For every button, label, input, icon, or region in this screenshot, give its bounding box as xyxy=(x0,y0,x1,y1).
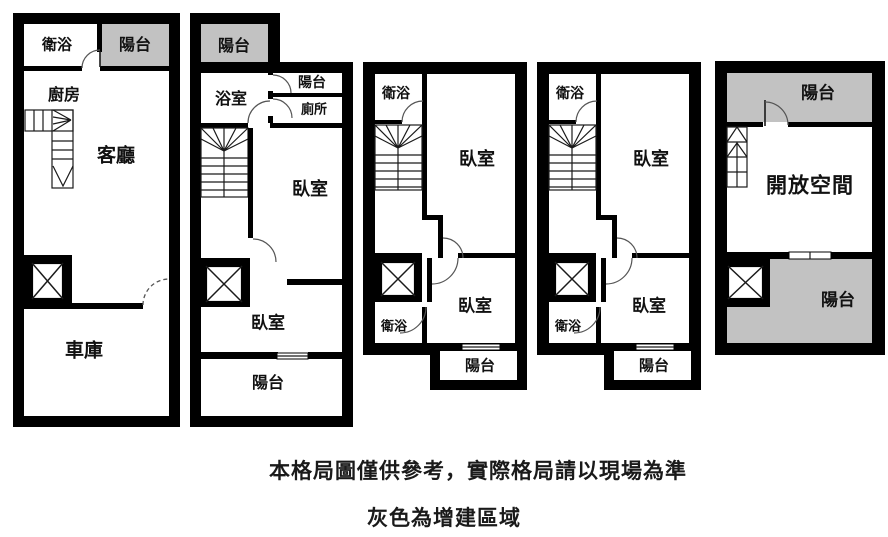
elevator-symbol xyxy=(373,253,422,302)
disclaimer-note: 本格局圖僅供參考，實際格局請以現場為準 xyxy=(269,455,687,485)
room-label-balcony: 陽台 xyxy=(465,359,495,374)
window-symbol xyxy=(462,344,500,350)
floor-plan-4 xyxy=(537,62,701,390)
room-label-bathroom: 衛浴 xyxy=(42,38,72,53)
room-label-balcony: 陽台 xyxy=(821,293,855,310)
room-label-toilet: 廁所 xyxy=(301,104,327,117)
room-label-bedroom: 臥室 xyxy=(458,299,492,316)
floor-plan-2 xyxy=(190,13,353,427)
elevator-symbol xyxy=(23,255,72,307)
floor-plan-1 xyxy=(13,13,180,427)
addition-balcony-area xyxy=(727,73,872,122)
room-label-garage: 車庫 xyxy=(65,342,103,361)
room-label-open-space: 開放空間 xyxy=(766,176,854,197)
floor-plan-3 xyxy=(363,62,527,390)
room-label-balcony: 陽台 xyxy=(119,37,151,53)
room-label-bathroom: 衛浴 xyxy=(382,87,410,101)
elevator-symbol xyxy=(719,258,770,307)
floor-plan-diagram: 衛浴 陽台 廚房 客廳 車庫 陽台 浴室 陽台 廁所 臥室 臥室 陽台 衛浴 臥… xyxy=(0,0,888,537)
room-label-balcony: 陽台 xyxy=(639,359,669,374)
legend-note: 灰色為增建區域 xyxy=(367,502,521,532)
floor-plan-5 xyxy=(715,61,885,355)
room-label-bedroom: 臥室 xyxy=(633,151,669,169)
elevator-symbol xyxy=(195,258,250,307)
room-label-bathroom: 衛浴 xyxy=(381,321,407,334)
room-label-kitchen: 廚房 xyxy=(48,87,80,103)
room-label-bedroom: 臥室 xyxy=(632,299,666,316)
room-label-balcony: 陽台 xyxy=(801,86,835,103)
window-symbol xyxy=(789,252,831,259)
room-label-balcony: 陽台 xyxy=(252,375,284,391)
room-label-balcony: 陽台 xyxy=(298,76,326,90)
room-label-bathroom: 浴室 xyxy=(215,91,247,107)
room-label-bathroom: 衛浴 xyxy=(555,321,581,334)
room-label-living-room: 客廳 xyxy=(97,147,135,166)
room-label-bedroom: 臥室 xyxy=(292,181,328,199)
room-label-bedroom: 臥室 xyxy=(251,316,285,333)
room-label-bedroom: 臥室 xyxy=(459,151,495,169)
room-label-balcony: 陽台 xyxy=(218,38,250,54)
window-symbol xyxy=(277,353,308,359)
room-label-bathroom: 衛浴 xyxy=(556,87,584,101)
